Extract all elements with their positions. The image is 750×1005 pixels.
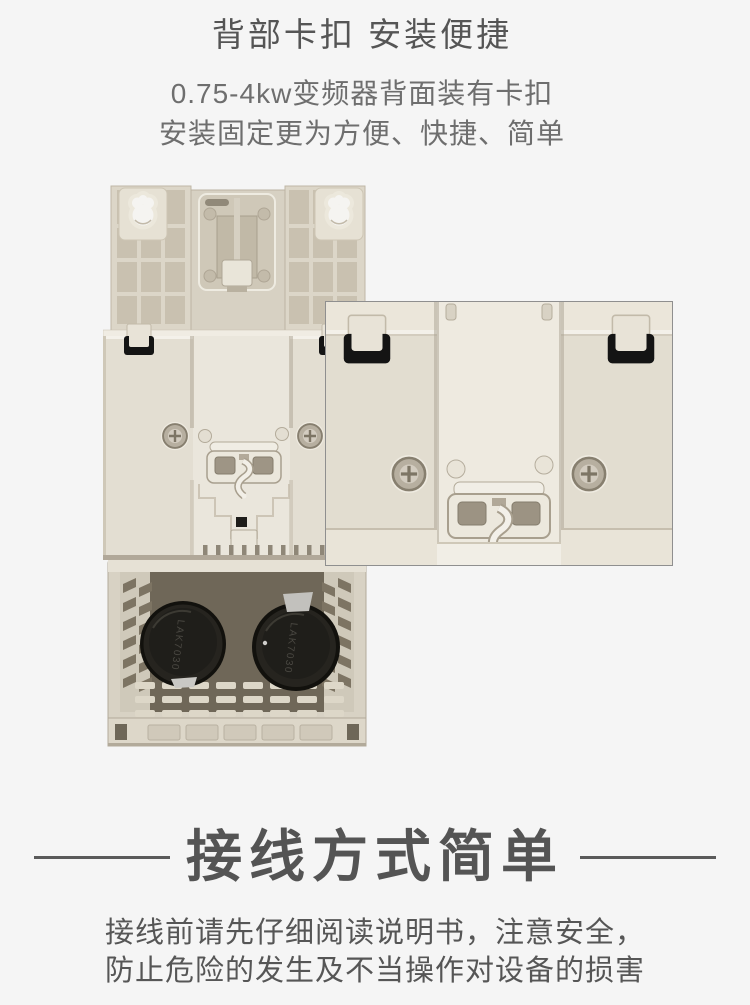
- mounting-screw-left-magnified: [391, 456, 427, 492]
- clip-detail-inset: [325, 301, 673, 566]
- wiring-caution-line1: 接线前请先仔细阅读说明书，注意安全，: [0, 914, 750, 952]
- snap-clip-left: [124, 324, 154, 355]
- mounting-screw-right: [297, 423, 324, 450]
- capacitor-cage: LAK7030 LAK7030: [108, 560, 366, 746]
- heading-rule-right: [580, 856, 716, 859]
- wiring-caution-line2: 防止危险的发生及不当操作对设备的损害: [0, 952, 750, 990]
- snap-clip-right-magnified: [608, 315, 655, 363]
- heading-rule-left: [34, 856, 170, 859]
- snap-clip-left-magnified: [344, 315, 391, 363]
- capacitor-vent-notch: [283, 592, 313, 612]
- wiring-title: 接线方式简单: [186, 826, 564, 888]
- mounting-screw-right-magnified: [571, 456, 607, 492]
- mounting-screw-left: [162, 423, 189, 450]
- mounting-keyhole-left: [128, 191, 158, 230]
- mounting-keyhole-right: [324, 191, 354, 230]
- wiring-section: 接线方式简单 接线前请先仔细阅读说明书，注意安全， 防止危险的发生及不当操作对设…: [0, 826, 750, 990]
- wiring-heading-row: 接线方式简单: [0, 826, 750, 888]
- clip-detail-photo: [326, 302, 672, 565]
- release-latch: [236, 517, 247, 527]
- product-detail-page: 背部卡扣 安装便捷 0.75-4kw变频器背面装有卡扣 安装固定更为方便、快捷、…: [0, 0, 750, 1005]
- cage-bottom-rim: [108, 718, 366, 746]
- back-slider-recess: [191, 190, 285, 332]
- product-photo: LAK7030 LAK7030: [0, 0, 750, 780]
